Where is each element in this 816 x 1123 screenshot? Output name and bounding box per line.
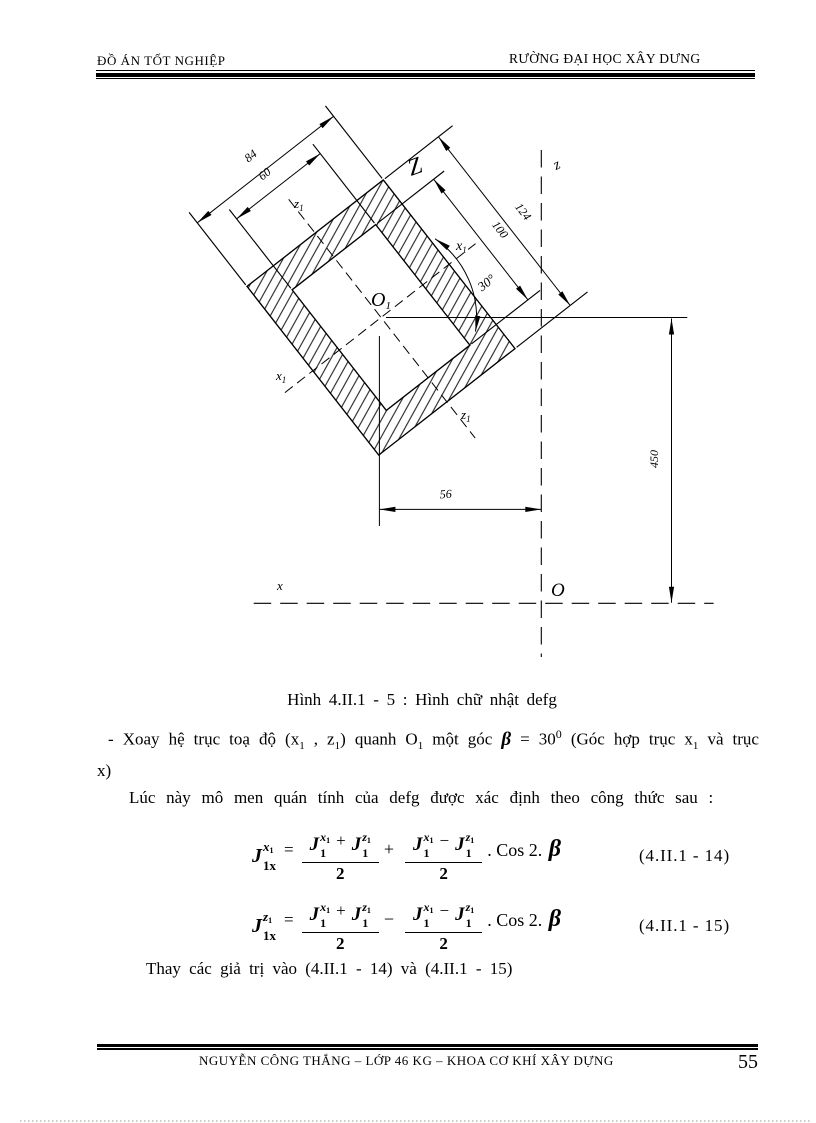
svg-text:Z: Z bbox=[404, 152, 426, 181]
svg-text:O1: O1 bbox=[371, 289, 391, 312]
svg-text:124: 124 bbox=[512, 200, 534, 223]
svg-text:z1: z1 bbox=[460, 407, 471, 424]
svg-text:100: 100 bbox=[489, 218, 511, 241]
svg-text:z: z bbox=[550, 157, 563, 174]
svg-text:x: x bbox=[276, 578, 283, 593]
svg-text:56: 56 bbox=[439, 487, 452, 502]
svg-text:450: 450 bbox=[647, 450, 661, 468]
svg-text:O: O bbox=[551, 580, 565, 601]
svg-text:x1: x1 bbox=[455, 239, 467, 255]
svg-text:84: 84 bbox=[241, 147, 259, 165]
svg-text:60: 60 bbox=[255, 165, 273, 183]
svg-text:x1: x1 bbox=[275, 368, 286, 385]
svg-text:30°: 30° bbox=[474, 271, 498, 295]
svg-text:z1: z1 bbox=[293, 196, 304, 213]
